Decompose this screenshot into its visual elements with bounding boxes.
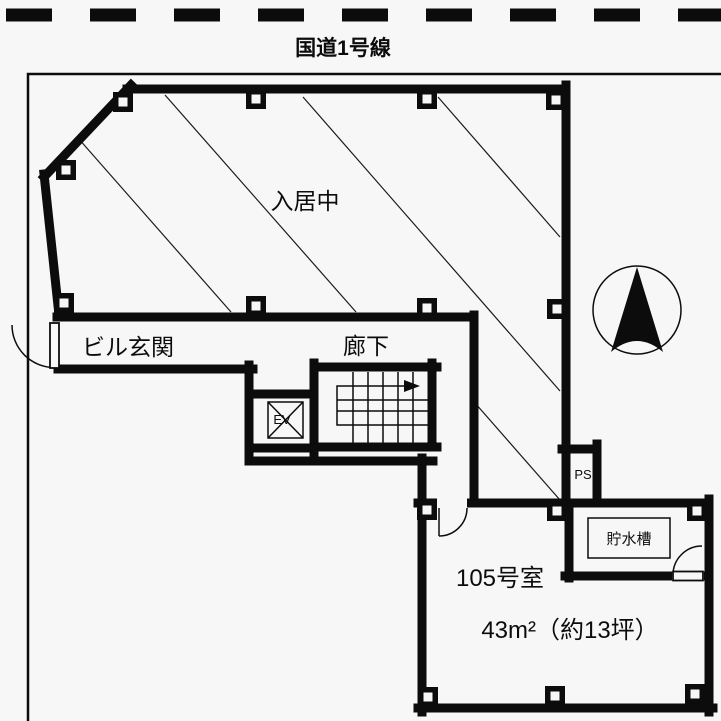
entrance-label: ビル玄関 [82,334,174,360]
road-label: 国道1号線 [295,36,391,60]
tank-room-door [673,546,703,581]
hatch-line [303,97,560,391]
hatch-line [475,403,560,500]
tank-door-leaf [673,572,703,581]
staircase [337,372,430,443]
stair-direction-arrow [404,380,420,392]
unit-area-label: 43m²（約13坪） [481,617,658,644]
entrance-door-arc [12,325,55,368]
hatch-line [78,138,231,312]
water-tank-label: 貯水槽 [606,531,651,548]
unit-door-arc [439,508,467,536]
unit-door-gap [437,497,467,509]
entrance-door-leaf [50,323,59,368]
unit-door [439,508,467,536]
floor-plan: 国道1号線 EV [0,0,721,721]
elevator-label: EV [273,412,291,427]
floor-plan-page: 国道1号線 EV [0,0,721,721]
unit-name-label: 105号室 [456,565,544,592]
corridor-label: 廊下 [343,333,389,359]
occupancy-hatch [78,95,560,500]
occupied-area-label: 入居中 [271,188,340,214]
elevator: EV [268,402,303,438]
north-compass [593,266,681,354]
north-arrow-icon [611,267,663,352]
hatch-line [438,97,560,237]
column-marks [54,89,707,707]
pipe-space-label: PS [574,467,592,482]
entrance-door [12,323,59,368]
